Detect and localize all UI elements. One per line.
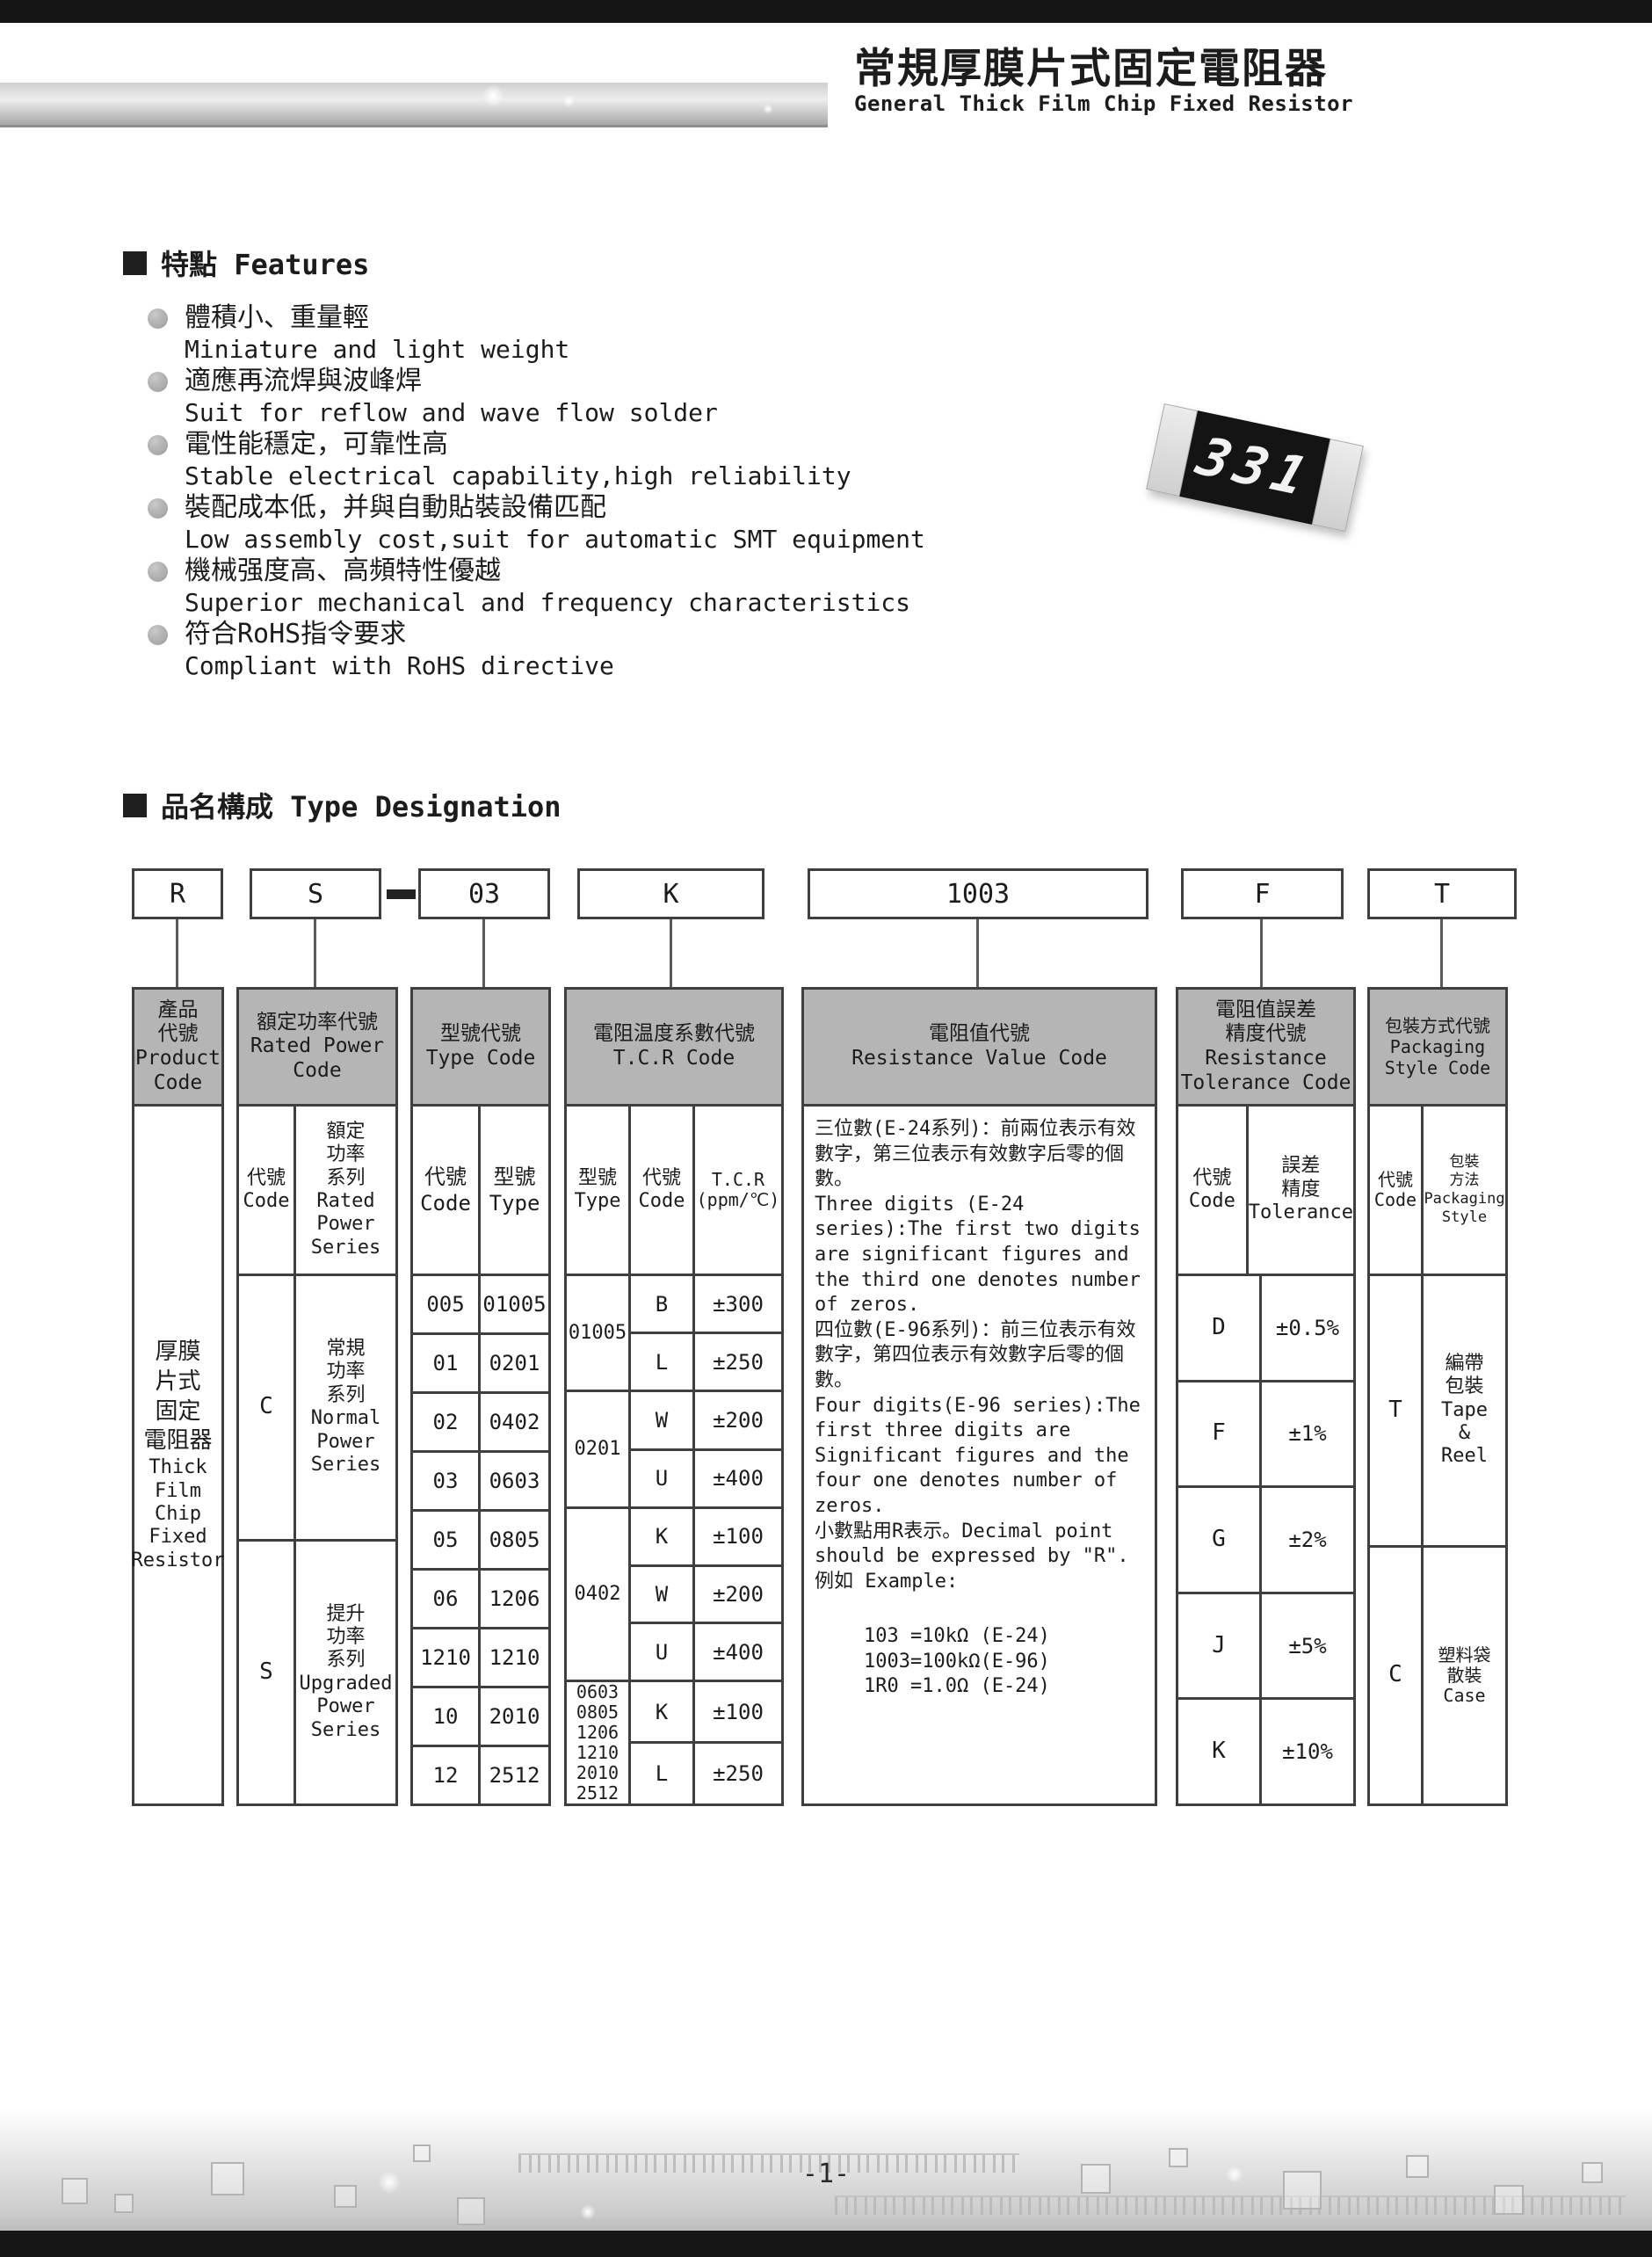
list-item: 機械强度高、高頻特性優越 Superior mechanical and fre… [148, 555, 1114, 619]
tcr-value: ±400 [695, 1451, 781, 1506]
table-row: F±1% [1178, 1380, 1353, 1486]
type-size: 2512 [481, 1747, 548, 1803]
connector-line [314, 919, 316, 987]
type-code: 1210 [413, 1629, 481, 1686]
tcr-code: B [631, 1276, 695, 1332]
tolerance-code: G [1178, 1488, 1262, 1592]
column-packaging: 包裝方式代號 Packaging Style Code 代號 Code 包裝 方… [1367, 987, 1508, 1806]
table-row: 050805 [413, 1509, 548, 1568]
list-item: 裝配成本低，并與自動貼裝設備匹配 Low assembly cost,suit … [148, 492, 1114, 555]
tcr-code: K [631, 1682, 695, 1742]
table-row: 020402 [413, 1391, 548, 1450]
feature-en: Stable electrical capability,high reliab… [148, 461, 1114, 492]
feature-en: Suit for reflow and wave flow solder [148, 397, 1114, 429]
subheader-code: 代號 Code [1178, 1107, 1249, 1274]
bullet-icon [148, 625, 168, 645]
value-paragraph: 例如 Example: [815, 1570, 1146, 1595]
table-row: S 提升 功率 系列 Upgraded Power Series [239, 1539, 395, 1804]
subheader-row: 型號 Type 代號 Code T.C.R (ppm/℃) [567, 1107, 781, 1274]
power-code: S [239, 1542, 296, 1804]
type-size: 0603 [481, 1453, 548, 1509]
feature-en: Miniature and light weight [148, 334, 1114, 366]
table-row: 010201 [413, 1332, 548, 1391]
type-designation-heading: 品名構成 Type Designation [123, 785, 562, 825]
page-number: -1- [0, 2159, 1652, 2189]
type-size: 1210 [481, 1629, 548, 1686]
bullet-icon [148, 435, 168, 455]
feature-en: Compliant with RoHS directive [148, 650, 1114, 682]
table-row: 102010 [413, 1686, 548, 1745]
bullet-icon [148, 498, 168, 519]
connector-line [1260, 919, 1263, 987]
type-size: 0201 [481, 1335, 548, 1391]
tolerance-code: K [1178, 1700, 1262, 1803]
value-examples: 103 =10kΩ (E-24) 1003=100kΩ(E-96) 1R0 =1… [815, 1624, 1146, 1700]
table-row: K±100 [631, 1509, 781, 1564]
feature-en: Superior mechanical and frequency charac… [148, 587, 1114, 619]
code-box-power: S [250, 868, 381, 919]
column-type-code: 型號代號 Type Code 代號 Code 型號 Type 00501005 … [410, 987, 551, 1806]
subheader-series: 額定 功率 系列 Rated Power Series [296, 1107, 395, 1274]
tcr-code: U [631, 1624, 695, 1680]
sparkle-dot [482, 84, 504, 107]
table-row: T 編帶 包裝 Tape & Reel [1370, 1274, 1505, 1545]
tcr-group: 01005 B±300 L±250 [567, 1274, 781, 1390]
tcr-code: K [631, 1509, 695, 1564]
resistance-value-body: 三位數(E-24系列)：前兩位表示有效數字，第三位表示有效數字后零的個數。 Th… [804, 1107, 1155, 1803]
column-product-code: 產品 代號 Product Code 厚膜 片式 固定 電阻器 Thick Fi… [132, 987, 224, 1806]
footer-square [1494, 2185, 1524, 2215]
packaging-style: 編帶 包裝 Tape & Reel [1424, 1276, 1505, 1545]
feature-zh: 機械强度高、高頻特性優越 [185, 555, 501, 586]
code-box-value: 1003 [808, 868, 1148, 919]
tcr-group: 0201 W±200 U±400 [567, 1390, 781, 1506]
tolerance-code: D [1178, 1276, 1262, 1380]
tcr-group-type: 0201 [567, 1392, 631, 1506]
list-item: 符合RoHS指令要求 Compliant with RoHS directive [148, 619, 1114, 682]
tcr-code: W [631, 1392, 695, 1448]
type-size: 2010 [481, 1688, 548, 1745]
feature-zh: 體積小、重量輕 [185, 302, 369, 333]
column-header: 包裝方式代號 Packaging Style Code [1370, 990, 1505, 1107]
packaging-style: 塑料袋 散裝 Case [1424, 1548, 1505, 1803]
table-row: G±2% [1178, 1485, 1353, 1592]
tcr-value: ±250 [695, 1334, 781, 1390]
table-row: 061206 [413, 1568, 548, 1627]
connector-line [670, 919, 672, 987]
list-item: 適應再流焊與波峰焊 Suit for reflow and wave flow … [148, 366, 1114, 429]
product-zh: 厚膜 片式 固定 電阻器 [143, 1338, 212, 1456]
code-box-type: 03 [418, 868, 550, 919]
features-heading-label: 特點 Features [161, 243, 369, 283]
connector-line [976, 919, 979, 987]
type-size: 0402 [481, 1394, 548, 1450]
value-paragraph: Three digits (E-24 series):The first two… [815, 1193, 1146, 1318]
table-row: W±200 [631, 1392, 781, 1448]
value-paragraph: 小數點用R表示。Decimal point should be expresse… [815, 1520, 1146, 1570]
section-square-icon [123, 794, 147, 817]
type-size: 01005 [481, 1276, 548, 1332]
product-code-body: 厚膜 片式 固定 電阻器 Thick Film Chip Fixed Resis… [134, 1107, 221, 1803]
subheader-code: 代號 Code [1370, 1107, 1424, 1274]
subheader-row: 代號 Code 額定 功率 系列 Rated Power Series [239, 1107, 395, 1274]
tolerance-value: ±2% [1262, 1488, 1353, 1592]
table-row: L±250 [631, 1741, 781, 1803]
column-header: 產品 代號 Product Code [134, 990, 221, 1107]
tcr-code: W [631, 1567, 695, 1622]
tcr-value: ±100 [695, 1509, 781, 1564]
datasheet-page: 常規厚膜片式固定電阻器 General Thick Film Chip Fixe… [0, 0, 1652, 2257]
chip-resistor-image: 331 [1144, 397, 1408, 599]
type-code: 005 [413, 1276, 481, 1332]
tcr-group: 0402 K±100 W±200 U±400 [567, 1506, 781, 1680]
bullet-icon [148, 372, 168, 392]
tcr-group-type: 01005 [567, 1276, 631, 1390]
list-item: 體積小、重量輕 Miniature and light weight [148, 302, 1114, 366]
connector-line [1440, 919, 1443, 987]
table-row: U±400 [631, 1448, 781, 1506]
code-box-packaging: T [1367, 868, 1517, 919]
table-row: L±250 [631, 1332, 781, 1390]
features-list: 體積小、重量輕 Miniature and light weight 適應再流焊… [148, 302, 1114, 682]
table-row: W±200 [631, 1564, 781, 1622]
table-row: 00501005 [413, 1274, 548, 1332]
tolerance-value: ±10% [1262, 1700, 1353, 1803]
value-paragraph: Four digits(E-96 series):The first three… [815, 1394, 1146, 1520]
header-gradient-band [0, 83, 828, 127]
tolerance-value: ±5% [1262, 1594, 1353, 1698]
tolerance-code: F [1178, 1383, 1262, 1486]
chip-marking: 331 [1190, 426, 1320, 509]
tcr-group-type: 0603 0805 1206 1210 2010 2512 [567, 1682, 631, 1803]
power-series: 提升 功率 系列 Upgraded Power Series [296, 1542, 395, 1804]
packaging-code: C [1370, 1548, 1424, 1803]
tolerance-value: ±1% [1262, 1383, 1353, 1486]
feature-zh: 電性能穩定，可靠性高 [185, 429, 448, 460]
table-row: C 塑料袋 散裝 Case [1370, 1545, 1505, 1803]
table-row: 12101210 [413, 1627, 548, 1686]
connector-line [482, 919, 485, 987]
power-code: C [239, 1276, 296, 1539]
footer-square [114, 2194, 134, 2213]
feature-en: Low assembly cost,suit for automatic SMT… [148, 524, 1114, 555]
table-row: U±400 [631, 1622, 781, 1680]
column-header: 型號代號 Type Code [413, 990, 548, 1107]
column-resistance-value: 電阻值代號 Resistance Value Code 三位數(E-24系列)：… [801, 987, 1157, 1806]
column-tcr: 電阻温度系數代號 T.C.R Code 型號 Type 代號 Code T.C.… [564, 987, 784, 1806]
feature-zh: 裝配成本低，并與自動貼裝設備匹配 [185, 492, 606, 523]
subheader-row: 代號 Code 型號 Type [413, 1107, 548, 1274]
tcr-code: L [631, 1334, 695, 1390]
code-box-tcr: K [577, 868, 764, 919]
tcr-code: U [631, 1451, 695, 1506]
subheader-row: 代號 Code 誤差 精度 Tolerance [1178, 1107, 1353, 1274]
table-row: C 常規 功率 系列 Normal Power Series [239, 1274, 395, 1539]
sparkle-dot [562, 95, 575, 107]
subheader-style: 包裝 方法 Packaging Style [1424, 1107, 1505, 1274]
chip-body: 331 [1146, 403, 1364, 532]
tcr-value: ±400 [695, 1624, 781, 1680]
tcr-value: ±300 [695, 1276, 781, 1332]
power-series: 常規 功率 系列 Normal Power Series [296, 1276, 395, 1539]
subheader-tolerance: 誤差 精度 Tolerance [1249, 1107, 1353, 1274]
footer-square [457, 2197, 485, 2225]
tcr-value: ±200 [695, 1392, 781, 1448]
column-header: 電阻值誤差 精度代號 Resistance Tolerance Code [1178, 990, 1353, 1107]
sparkle-dot [580, 2204, 596, 2220]
bullet-icon [148, 308, 168, 329]
tcr-value: ±200 [695, 1567, 781, 1622]
table-row: B±300 [631, 1276, 781, 1332]
subheader-tcr-value: T.C.R (ppm/℃) [695, 1107, 781, 1274]
product-en: Thick Film Chip Fixed Resistor [132, 1456, 225, 1572]
table-row: 030603 [413, 1450, 548, 1509]
column-header: 額定功率代號 Rated Power Code [239, 990, 395, 1107]
feature-zh: 適應再流焊與波峰焊 [185, 366, 422, 396]
type-code: 02 [413, 1394, 481, 1450]
subheader-code: 代號 Code [239, 1107, 296, 1274]
code-box-product: R [132, 868, 223, 919]
type-code: 03 [413, 1453, 481, 1509]
tcr-value: ±100 [695, 1682, 781, 1742]
tcr-group-type: 0402 [567, 1509, 631, 1680]
column-header: 電阻值代號 Resistance Value Code [804, 990, 1155, 1107]
code-box-tolerance: F [1181, 868, 1344, 919]
table-row: D±0.5% [1178, 1274, 1353, 1380]
type-size: 1206 [481, 1571, 548, 1627]
subheader-type: 型號 Type [567, 1107, 631, 1274]
type-designation-heading-label: 品名構成 Type Designation [161, 785, 562, 825]
type-code: 12 [413, 1747, 481, 1803]
bullet-icon [148, 562, 168, 582]
table-row: 122512 [413, 1745, 548, 1803]
type-code: 06 [413, 1571, 481, 1627]
value-paragraph: 三位數(E-24系列)：前兩位表示有效數字，第三位表示有效數字后零的個數。 [815, 1117, 1146, 1193]
page-title-zh: 常規厚膜片式固定電阻器 [854, 47, 1381, 91]
table-row: J±5% [1178, 1592, 1353, 1698]
feature-zh: 符合RoHS指令要求 [185, 619, 406, 650]
top-edge-bar [0, 0, 1652, 23]
column-rated-power: 額定功率代號 Rated Power Code 代號 Code 額定 功率 系列… [236, 987, 398, 1806]
list-item: 電性能穩定，可靠性高 Stable electrical capability,… [148, 429, 1114, 492]
tcr-code: L [631, 1744, 695, 1803]
column-header: 電阻温度系數代號 T.C.R Code [567, 990, 781, 1107]
subheader-code: 代號 Code [413, 1107, 481, 1274]
tcr-group: 0603 0805 1206 1210 2010 2512 K±100 L±25… [567, 1680, 781, 1803]
page-title-en: General Thick Film Chip Fixed Resistor [854, 91, 1381, 116]
subheader-row: 代號 Code 包裝 方法 Packaging Style [1370, 1107, 1505, 1274]
subheader-code: 代號 Code [631, 1107, 695, 1274]
section-square-icon [123, 251, 147, 275]
table-row: K±100 [631, 1682, 781, 1742]
type-code: 05 [413, 1512, 481, 1568]
features-heading: 特點 Features [123, 243, 369, 283]
value-paragraph: 四位數(E-96系列)：前三位表示有效數字，第四位表示有效數字后零的個數。 [815, 1318, 1146, 1394]
tcr-value: ±250 [695, 1744, 781, 1803]
table-row: K±10% [1178, 1697, 1353, 1803]
tolerance-code: J [1178, 1594, 1262, 1698]
tolerance-value: ±0.5% [1262, 1276, 1353, 1380]
packaging-code: T [1370, 1276, 1424, 1545]
bottom-edge-bar [0, 2231, 1652, 2257]
connector-line [176, 919, 178, 987]
type-size: 0805 [481, 1512, 548, 1568]
type-code: 01 [413, 1335, 481, 1391]
subheader-type: 型號 Type [481, 1107, 548, 1274]
column-tolerance: 電阻值誤差 精度代號 Resistance Tolerance Code 代號 … [1176, 987, 1356, 1806]
sparkle-dot [763, 104, 773, 114]
dash-separator [387, 889, 416, 899]
type-code: 10 [413, 1688, 481, 1745]
